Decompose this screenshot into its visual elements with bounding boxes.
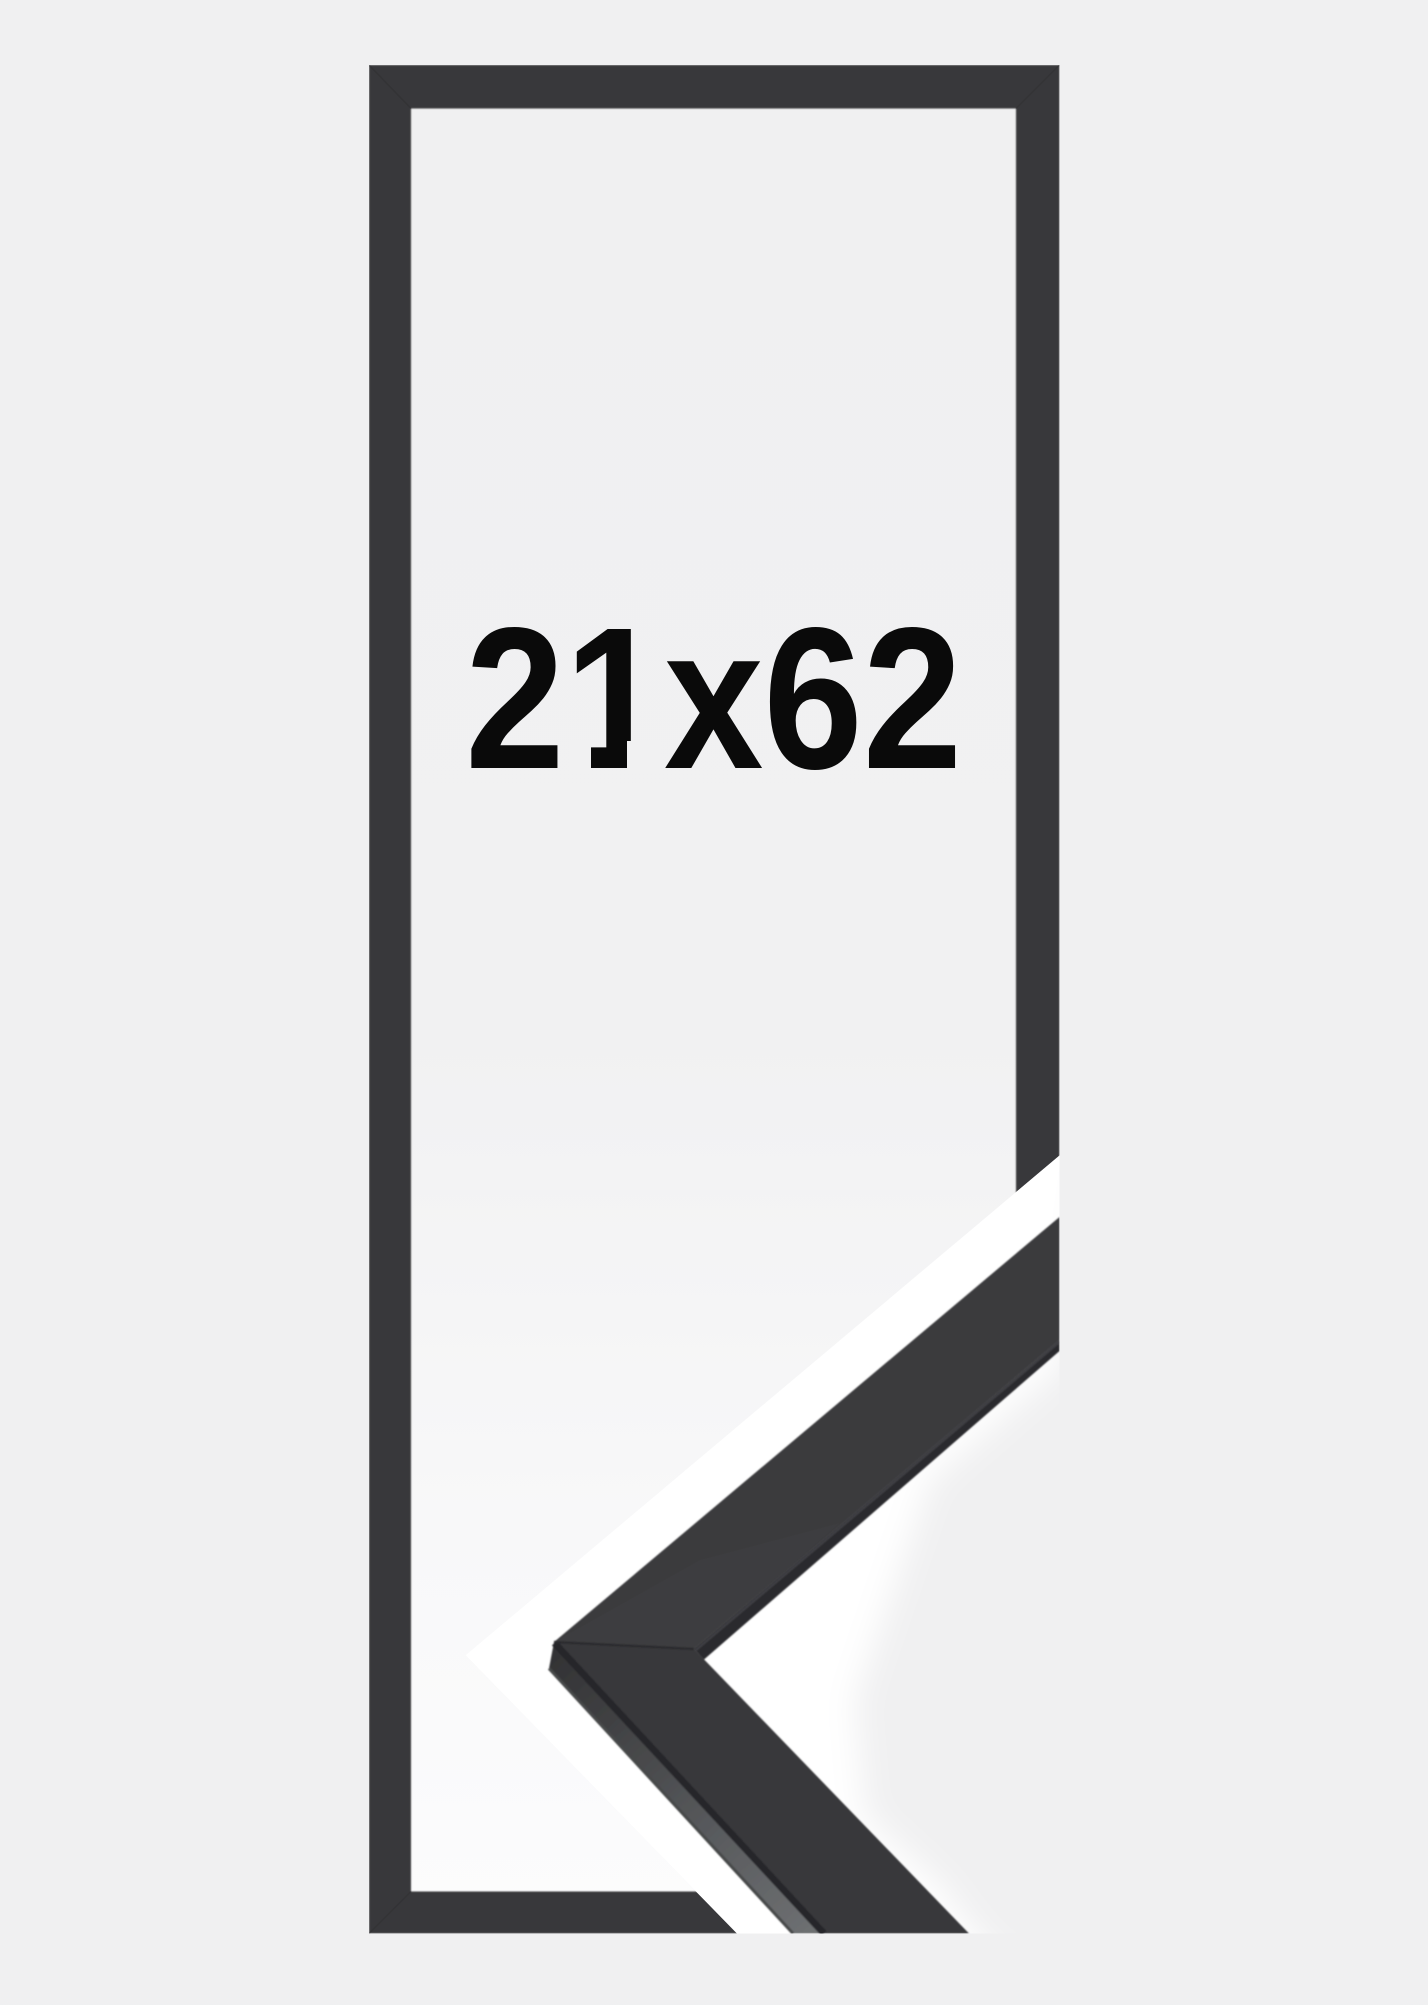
svg-text:21x62: 21x62 bbox=[465, 585, 962, 811]
